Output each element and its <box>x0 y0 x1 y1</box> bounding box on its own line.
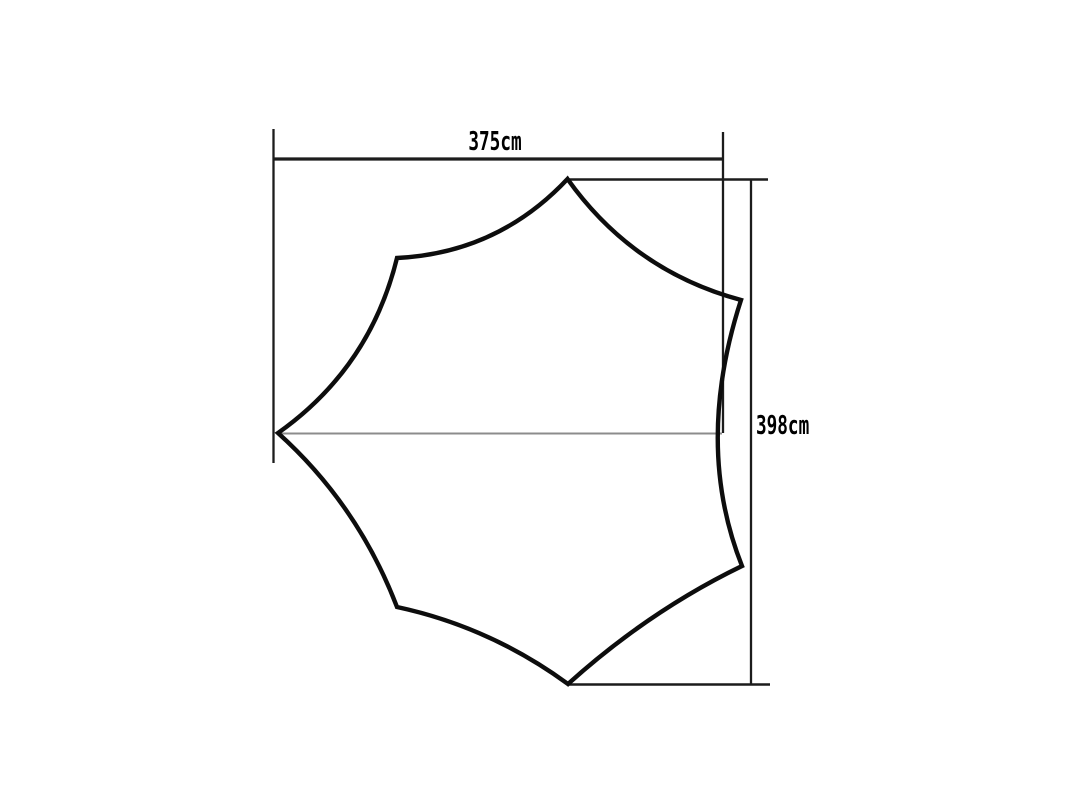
dimension-lines <box>273 129 771 685</box>
tarp-outline <box>278 179 742 684</box>
tarp-diagram-svg <box>0 0 1080 810</box>
diagram-canvas: 375cm 398cm <box>0 0 1080 810</box>
height-dimension-label: 398cm <box>756 413 809 439</box>
width-dimension-label: 375cm <box>468 129 521 155</box>
